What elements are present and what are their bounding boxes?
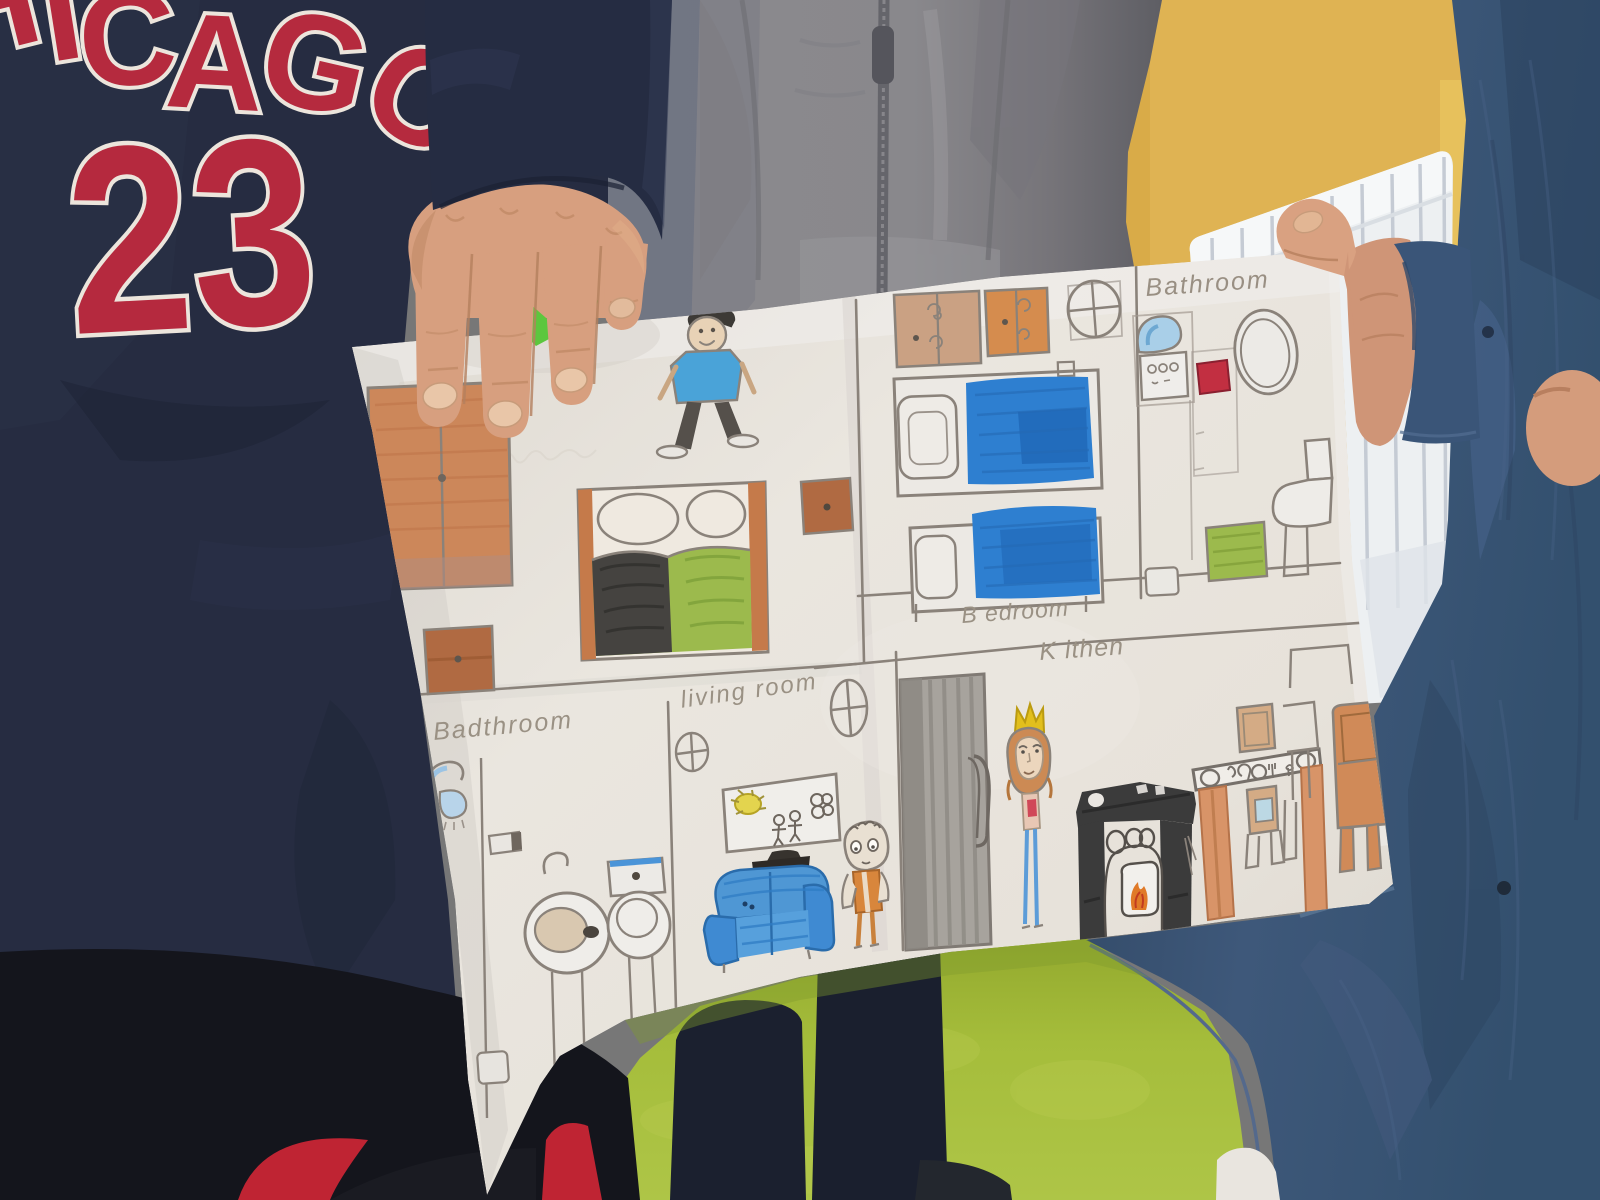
- svg-text:K ithen: K ithen: [1038, 632, 1125, 666]
- svg-text:23: 23: [59, 81, 322, 391]
